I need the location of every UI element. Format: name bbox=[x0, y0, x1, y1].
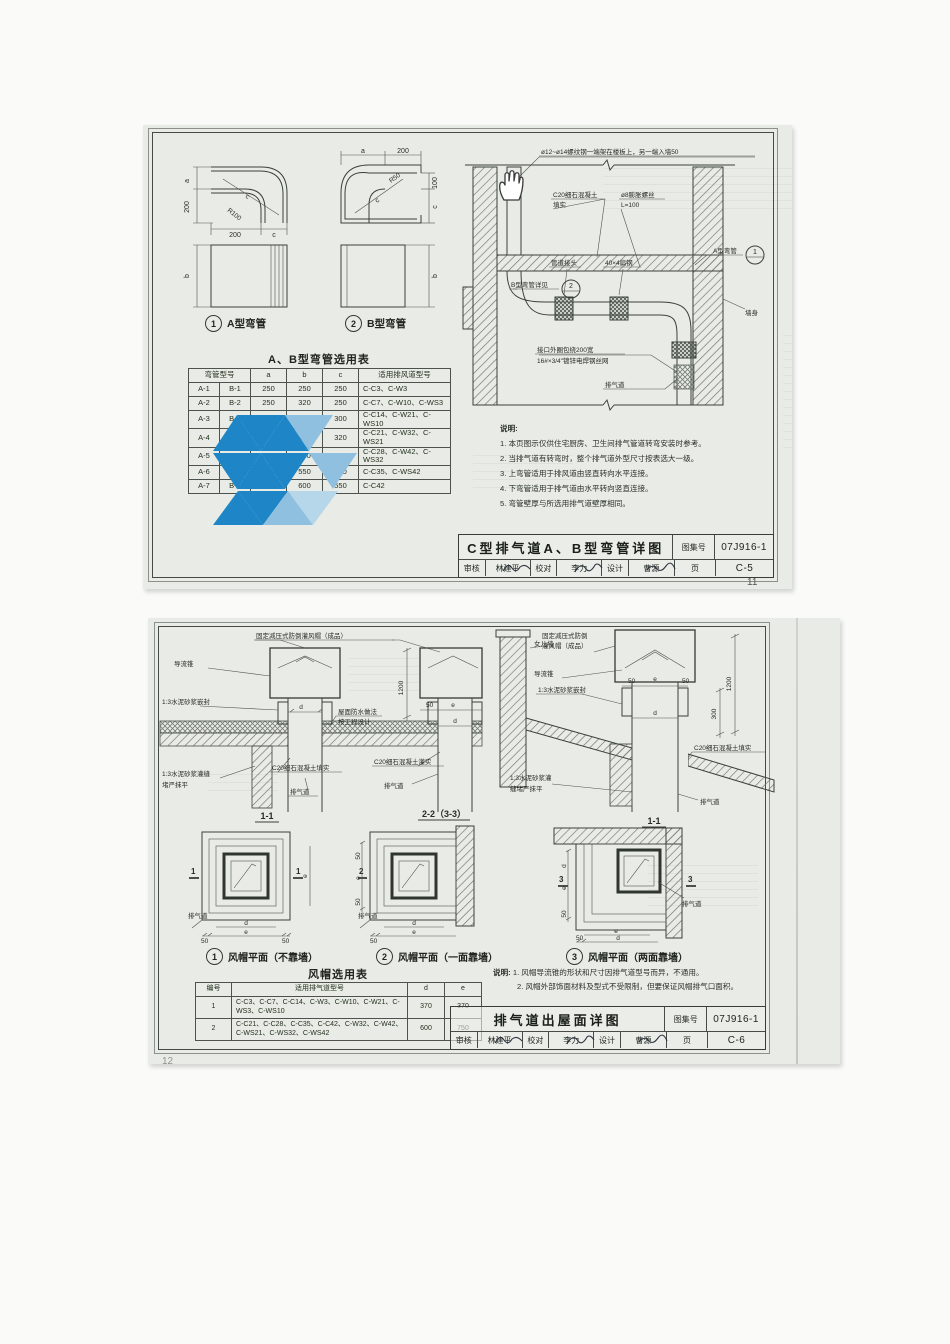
dim-100: 100 bbox=[432, 177, 439, 189]
label-concrete-1: C20细石混凝土 bbox=[553, 190, 598, 199]
label-duct-right: 排气道 bbox=[384, 781, 404, 790]
dim-50-vert: 50 bbox=[561, 910, 568, 918]
page-c6: 1200 d 50 e d 固定减压式防倒灌风帽（成品） 导流锥 1:3水泥砂浆… bbox=[148, 618, 840, 1064]
dim-a: a bbox=[184, 179, 191, 183]
dim-d-right: d bbox=[453, 718, 457, 725]
label-duct: 排气道 bbox=[358, 911, 378, 920]
dim-50: 50 bbox=[576, 935, 584, 942]
bubble-a-number: 1 bbox=[753, 249, 757, 256]
note-item: 3. 上弯管适用于排风道由竖直转向水平连接。 bbox=[500, 466, 772, 481]
cell: C-C7、C-W10、C-WS3 bbox=[359, 397, 451, 411]
label-a-elbow-ref: A型弯管 bbox=[713, 246, 737, 255]
label-flat-steel: 40×4扁钢 bbox=[605, 258, 633, 267]
dim-c: c bbox=[432, 205, 439, 209]
duct-leader bbox=[192, 920, 202, 928]
label-grout-1: 1:3水泥砂浆灌缝 bbox=[162, 769, 211, 778]
windcap-selection-table: 编号 适用排气道型号 d e 1 C-C3、C-C7、C-C14、C-W3、C-… bbox=[195, 982, 482, 1041]
table-row: 1 C-C3、C-C7、C-C14、C-W3、C-W10、C-W21、C-WS3… bbox=[196, 997, 482, 1019]
label-cone: 导流锥 bbox=[534, 669, 554, 678]
designer-label: 设计 bbox=[599, 1035, 615, 1046]
label-wrap-1: 接口外圈包绕200宽 bbox=[537, 345, 594, 354]
label-rebar: ø12~ø14螺纹钢一端架在楼板上，另一端入墙50 bbox=[541, 147, 679, 156]
label-pipe-joint: 管道接头 bbox=[551, 258, 578, 267]
wind-cap-plan-two-walls: 3 3 e 50 d d e 50 排气道 bbox=[538, 826, 708, 944]
elbow-table-title: A、B型弯管选用表 bbox=[188, 351, 450, 367]
cut-number: 2 bbox=[359, 867, 364, 876]
cell: 250 bbox=[251, 383, 287, 397]
cell: C-C28、C-W42、C-WS32 bbox=[359, 447, 451, 465]
label-b-elbow-ref: B型弯管详见 bbox=[511, 280, 548, 289]
cut-number-left: 1 bbox=[191, 867, 196, 876]
plan3-caption-label: 风帽平面（两面靠墙） bbox=[588, 949, 688, 964]
atlas-no-value: 07J916-1 bbox=[721, 542, 767, 553]
label-cone: 导流锥 bbox=[174, 659, 194, 668]
label-mortar-seal: 1:3水泥砂浆嵌封 bbox=[538, 685, 587, 694]
windcap-table-title: 风帽选用表 bbox=[195, 966, 481, 982]
plan2-caption: 2 风帽平面（一面靠墙） bbox=[376, 948, 498, 965]
cell: C-C35、C-WS42 bbox=[359, 465, 451, 479]
figure-a-caption-label: A型弯管 bbox=[227, 316, 266, 331]
dim-d-left: d bbox=[299, 704, 303, 711]
cut-number-right: 1 bbox=[296, 867, 301, 876]
table-header-row: 弯管型号 a b c 适用排风道型号 bbox=[189, 369, 451, 383]
dim-c: c bbox=[272, 232, 276, 239]
cut-number-left: 3 bbox=[559, 875, 564, 884]
dim-e: e bbox=[614, 928, 618, 935]
page-number: 12 bbox=[162, 1056, 173, 1064]
detail-bubble-1: 1 bbox=[205, 315, 222, 332]
col-e: e bbox=[445, 983, 482, 997]
detail-bubble-2: 2 bbox=[376, 948, 393, 965]
dim-e-right: e bbox=[451, 702, 455, 709]
reviewer-signature bbox=[500, 560, 534, 576]
label-concrete-2: 填实 bbox=[553, 200, 567, 209]
cell: 250 bbox=[287, 383, 323, 397]
label-wrap-2: 16#×3/4"镀锌电焊钢丝网 bbox=[537, 356, 608, 365]
note-item: 2. 风帽外部饰面材料及型式不受限制，但要保证风帽排气口面积。 bbox=[493, 980, 773, 994]
dim-50-right: 50 bbox=[682, 678, 690, 685]
checker-signature bbox=[571, 560, 605, 576]
table-row: A-2B-2250320250C-C7、C-W10、C-WS3 bbox=[189, 397, 451, 411]
caption-1-1: 1-1 bbox=[260, 811, 273, 821]
cell: 370 bbox=[408, 997, 445, 1019]
dim-e: e bbox=[244, 929, 248, 936]
sloped-roof-section-detail: 50 e 50 d 1200 300 女儿墙 导流锥 固定减压式防倒 灌风帽（成… bbox=[482, 626, 774, 828]
cut-number-right: 3 bbox=[688, 875, 693, 884]
cell: 600 bbox=[408, 1019, 445, 1041]
dim-1200-text: 1200 bbox=[398, 680, 405, 695]
dim-200: 200 bbox=[184, 201, 191, 213]
page-no-value: C-5 bbox=[736, 563, 754, 574]
dim-b: b bbox=[184, 274, 191, 278]
caption-1-1: 1-1 bbox=[647, 816, 660, 826]
dim-c-diagonal: c bbox=[374, 197, 381, 205]
col-model: 弯管型号 bbox=[189, 369, 251, 383]
cell: A-2 bbox=[189, 397, 220, 411]
dim-e-vert: e bbox=[302, 874, 309, 878]
title-block: C型排气道A、B型弯管详图 图集号 07J916-1 审核 林建平 校对 李力 … bbox=[458, 534, 774, 578]
atlas-no-label: 图集号 bbox=[674, 1014, 698, 1025]
dim-50-left: 50 bbox=[201, 938, 209, 945]
page-no-value: C-6 bbox=[728, 1035, 746, 1046]
dim-50: 50 bbox=[370, 938, 378, 945]
section-captions: 1-1 2-2（3-3） bbox=[255, 809, 470, 822]
paper-crease bbox=[796, 618, 798, 1064]
caption-2-2: 2-2（3-3） bbox=[422, 809, 466, 819]
plan1-caption-label: 风帽平面（不靠墙） bbox=[228, 949, 318, 964]
elbow-b-front-view bbox=[341, 245, 435, 307]
dim-e: e bbox=[653, 676, 657, 683]
cell: C-C14、C-W21、C-WS10 bbox=[359, 411, 451, 429]
dim-d-vert: d bbox=[561, 864, 568, 868]
dim-d: d bbox=[616, 935, 620, 942]
checker-signature bbox=[563, 1032, 597, 1048]
reviewer-label: 审核 bbox=[464, 563, 480, 574]
col-use: 适用排气道型号 bbox=[232, 983, 408, 997]
page-label: 页 bbox=[683, 1035, 691, 1046]
label-concrete-right: C20细石混凝土灌实 bbox=[374, 757, 432, 766]
note-item: 5. 弯管壁厚与所选用排气道壁厚相同。 bbox=[500, 496, 772, 511]
cell: 250 bbox=[323, 383, 359, 397]
detail-bubble-3: 3 bbox=[566, 948, 583, 965]
dim-50-right: 50 bbox=[426, 702, 434, 709]
label-bolt-1: ø8膨胀螺丝 bbox=[621, 190, 655, 199]
dim-d: d bbox=[244, 920, 248, 927]
nested-squares bbox=[576, 844, 666, 930]
note-item: 4. 下弯管适用于排气道由水平转向竖直连接。 bbox=[500, 481, 772, 496]
figure-a-elbow-diagram: a 200 200 c c R100 b bbox=[183, 145, 308, 317]
designer-signature bbox=[636, 1032, 670, 1048]
table-header-row: 编号 适用排气道型号 d e bbox=[196, 983, 482, 997]
dim-200: 200 bbox=[229, 232, 241, 239]
duct-leader bbox=[360, 920, 370, 928]
scanned-document-canvas: a 200 200 c c R100 b bbox=[0, 0, 950, 1344]
dim-c-diagonal: c bbox=[244, 193, 251, 201]
cell: B-1 bbox=[220, 383, 251, 397]
dim-e-vert: e bbox=[561, 886, 568, 890]
dim-r100: R100 bbox=[226, 207, 243, 222]
label-roof-waterproof-2: 按工程设计 bbox=[338, 717, 371, 726]
checker-label: 校对 bbox=[535, 563, 551, 574]
label-cap-1: 固定减压式防倒 bbox=[542, 631, 588, 640]
cell: C-C21、C-C28、C-C35、C-C42、C-W32、C-W42、C-WS… bbox=[232, 1019, 408, 1041]
col-c: c bbox=[323, 369, 359, 383]
detail-bubble-2: 2 bbox=[345, 315, 362, 332]
duct-and-cap bbox=[610, 630, 695, 812]
wind-cap-plan-freestanding: 1 1 d e 50 50 e 排气道 bbox=[188, 826, 328, 944]
bubble-b-number: 2 bbox=[569, 283, 573, 290]
nested-squares bbox=[370, 832, 456, 920]
label-cap-2: 灌风帽（成品） bbox=[542, 641, 588, 650]
dim-200: 200 bbox=[397, 148, 409, 155]
cell: C-C21、C-W32、C-WS21 bbox=[359, 429, 451, 447]
label-concrete: C20细石混凝土填实 bbox=[694, 743, 752, 752]
hand-cursor-icon[interactable] bbox=[495, 167, 525, 201]
cell: C-C3、C-W3 bbox=[359, 383, 451, 397]
parapet-wall bbox=[496, 630, 530, 787]
dim-50-vert: 50 bbox=[355, 898, 362, 906]
bleed-through-artifact bbox=[783, 335, 792, 455]
table-row: A-1B-1250250250C-C3、C-W3 bbox=[189, 383, 451, 397]
sheet-title: 排气道出屋面详图 bbox=[494, 1010, 622, 1029]
plan3-caption: 3 风帽平面（两面靠墙） bbox=[566, 948, 688, 965]
label-duct: 排气道 bbox=[682, 899, 702, 908]
note-item: 2. 当排气道有转弯时，整个排气道外型尺寸按表选大一级。 bbox=[500, 451, 772, 466]
designer-label: 设计 bbox=[607, 563, 623, 574]
label-bolt-2: L=100 bbox=[621, 202, 640, 209]
notes-title: 说明: bbox=[500, 421, 772, 436]
detail-bubble-1: 1 bbox=[206, 948, 223, 965]
dim-d: d bbox=[653, 710, 657, 717]
label-grout-2: 堵严抹平 bbox=[162, 780, 189, 789]
note-item: 1. 本页图示仅供住宅厨房、卫生间排气管道转弯安装时参考。 bbox=[500, 436, 772, 451]
designer-signature bbox=[644, 560, 678, 576]
cell: C-C3、C-C7、C-C14、C-W3、C-W10、C-W21、C-WS3、C… bbox=[232, 997, 408, 1019]
figure-b-caption: 2 B型弯管 bbox=[345, 315, 406, 332]
dims bbox=[566, 849, 658, 942]
label-roof-waterproof-1: 屋面防水做法 bbox=[338, 707, 378, 716]
plan2-caption-label: 风帽平面（一面靠墙） bbox=[398, 949, 498, 964]
dim-e: e bbox=[412, 929, 416, 936]
dim-50-vert: 50 bbox=[355, 852, 362, 860]
col-b: b bbox=[287, 369, 323, 383]
dim-d: d bbox=[412, 920, 416, 927]
cell: B-2 bbox=[220, 397, 251, 411]
label-wind-cap: 固定减压式防倒灌风帽（成品） bbox=[256, 631, 347, 640]
checker-label: 校对 bbox=[527, 1035, 543, 1046]
notes-block: 说明: 1. 风帽导流锥的形状和尺寸因排气道型号而异，不通用。 2. 风帽外部饰… bbox=[493, 966, 773, 993]
sheet-title: C型排气道A、B型弯管详图 bbox=[467, 538, 664, 557]
page-label: 页 bbox=[691, 563, 699, 574]
wall-hatch bbox=[456, 826, 474, 926]
wind-cap-plan-one-wall: 2 d e 50 50 e 50 排气道 bbox=[358, 826, 498, 944]
title-block: 排气道出屋面详图 图集号 07J916-1 审核 林建平 校对 李力 设计 曹源… bbox=[450, 1006, 766, 1050]
page-number: 11 bbox=[747, 577, 757, 588]
atlas-no-label: 图集号 bbox=[682, 542, 706, 553]
label-duct-left: 排气道 bbox=[290, 787, 310, 796]
notes-title: 说明: bbox=[493, 968, 511, 977]
figure-a-caption: 1 A型弯管 bbox=[205, 315, 266, 332]
table-row: 2 C-C21、C-C28、C-C35、C-C42、C-W32、C-W42、C-… bbox=[196, 1019, 482, 1041]
label-mortar-seal: 1:3水泥砂浆嵌封 bbox=[162, 697, 211, 706]
label-grout-1: 1:3水泥砂浆灌 bbox=[510, 773, 552, 782]
cell: 2 bbox=[196, 1019, 232, 1041]
label-concrete-left: C20细石混凝土填实 bbox=[272, 763, 330, 772]
blue-triangle-watermark bbox=[211, 413, 359, 527]
figure-b-elbow-diagram: a 200 100 c c R50 b bbox=[325, 145, 450, 317]
elbow-a-dimensions bbox=[193, 167, 287, 235]
reviewer-label: 审核 bbox=[456, 1035, 472, 1046]
dim-50-left: 50 bbox=[628, 678, 636, 685]
detail-bubble-a: 1 bbox=[746, 246, 764, 264]
notes-block: 说明: 1. 本页图示仅供住宅厨房、卫生间排气管道转弯安装时参考。 2. 当排气… bbox=[500, 421, 772, 511]
col-use: 适用排风道型号 bbox=[359, 369, 451, 383]
elbow-a-front-view bbox=[193, 245, 287, 307]
label-duct: 排气道 bbox=[188, 911, 208, 920]
dim-50-right: 50 bbox=[282, 938, 290, 945]
col-no: 编号 bbox=[196, 983, 232, 997]
label-grout-2: 缝堵严抹平 bbox=[510, 784, 543, 793]
elbow-b-dimensions bbox=[341, 151, 435, 223]
label-duct: 排气道 bbox=[700, 797, 720, 806]
cell: 250 bbox=[251, 397, 287, 411]
atlas-no-value: 07J916-1 bbox=[713, 1014, 759, 1025]
cell: C-C42 bbox=[359, 479, 451, 493]
note-item: 1. 风帽导流锥的形状和尺寸因排气道型号而异，不通用。 bbox=[513, 968, 704, 977]
masonry-wall-block bbox=[252, 746, 272, 808]
col-a: a bbox=[251, 369, 287, 383]
dim-300: 300 bbox=[711, 708, 718, 719]
col-d: d bbox=[408, 983, 445, 997]
nested-squares bbox=[202, 832, 290, 920]
reviewer-signature bbox=[492, 1032, 526, 1048]
dim-1200: 1200 bbox=[726, 676, 733, 691]
cell: 250 bbox=[323, 397, 359, 411]
dim-r50: R50 bbox=[388, 172, 402, 185]
label-exhaust-duct: 排气道 bbox=[605, 380, 625, 389]
plan1-caption: 1 风帽平面（不靠墙） bbox=[206, 948, 318, 965]
cell: A-1 bbox=[189, 383, 220, 397]
cell: 320 bbox=[287, 397, 323, 411]
figure-b-caption-label: B型弯管 bbox=[367, 316, 406, 331]
dim-a: a bbox=[361, 148, 365, 155]
dim-b: b bbox=[432, 274, 439, 278]
flat-roof-section-detail: 1200 d 50 e d 固定减压式防倒灌风帽（成品） 导流锥 1:3水泥砂浆… bbox=[160, 626, 482, 824]
elbow-b-outline bbox=[341, 165, 421, 223]
dim-e-vert: e bbox=[355, 876, 362, 880]
label-wall-body: 墙身 bbox=[745, 308, 759, 317]
page-c5: a 200 200 c c R100 b bbox=[143, 125, 792, 589]
cell: 1 bbox=[196, 997, 232, 1019]
